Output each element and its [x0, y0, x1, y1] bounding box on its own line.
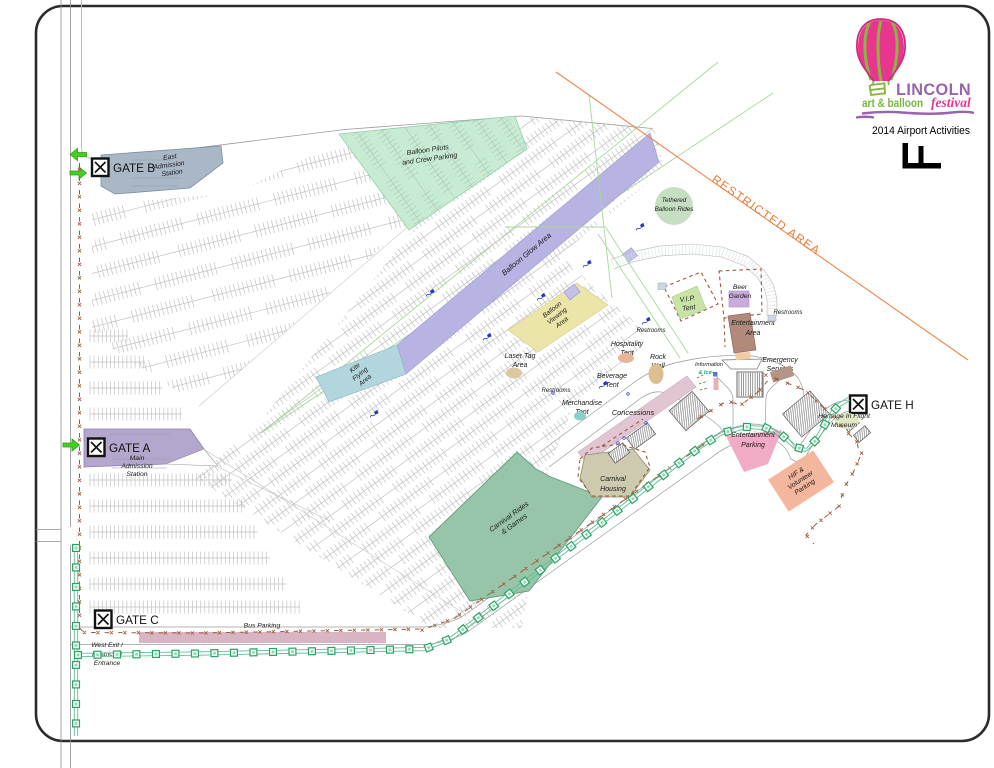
svg-text:2014 Airport Activities: 2014 Airport Activities — [872, 125, 970, 138]
svg-text:Museum: Museum — [831, 422, 857, 429]
svg-text:Station: Station — [126, 471, 147, 478]
svg-text:GATE B: GATE B — [113, 162, 155, 175]
svg-text:Carnival: Carnival — [600, 476, 626, 483]
svg-text:Tent: Tent — [605, 382, 619, 389]
svg-text:West Exit /: West Exit / — [91, 642, 124, 649]
svg-text:Information: Information — [695, 362, 723, 368]
svg-text:Parking: Parking — [741, 442, 765, 449]
svg-text:Restrooms: Restrooms — [636, 328, 665, 334]
svg-text:Concessions: Concessions — [612, 408, 655, 417]
svg-text:Garden: Garden — [729, 293, 752, 300]
svg-text:Entrance: Entrance — [94, 660, 121, 667]
svg-text:Entertainment: Entertainment — [731, 432, 776, 439]
svg-text:Restrooms: Restrooms — [773, 310, 802, 316]
svg-text:Admission: Admission — [120, 463, 153, 470]
svg-text:GATE A: GATE A — [109, 442, 151, 455]
svg-text:GATE C: GATE C — [116, 614, 159, 627]
svg-text:Tethered: Tethered — [662, 197, 687, 204]
svg-text:Beer: Beer — [733, 284, 748, 291]
svg-text:Emergency: Emergency — [762, 357, 798, 364]
svg-text:Housing: Housing — [600, 486, 626, 493]
svg-text:Balloon Rides: Balloon Rides — [655, 206, 695, 213]
svg-text:GATE H: GATE H — [871, 399, 914, 412]
svg-text:Laser Tag: Laser Tag — [505, 353, 536, 360]
svg-text:Restrooms: Restrooms — [541, 388, 570, 394]
svg-text:festival: festival — [931, 95, 971, 110]
svg-text:Main: Main — [130, 455, 145, 462]
svg-text:Rock: Rock — [650, 354, 666, 361]
svg-text:Bus Parking: Bus Parking — [244, 623, 281, 630]
svg-text:Area: Area — [745, 330, 761, 337]
svg-text:Merchandise: Merchandise — [562, 400, 602, 407]
svg-text:Hospitality: Hospitality — [611, 341, 644, 348]
svg-text:Beverage: Beverage — [597, 373, 627, 380]
svg-text:art & balloon: art & balloon — [862, 97, 923, 110]
svg-text:& Ice: & Ice — [698, 370, 711, 376]
